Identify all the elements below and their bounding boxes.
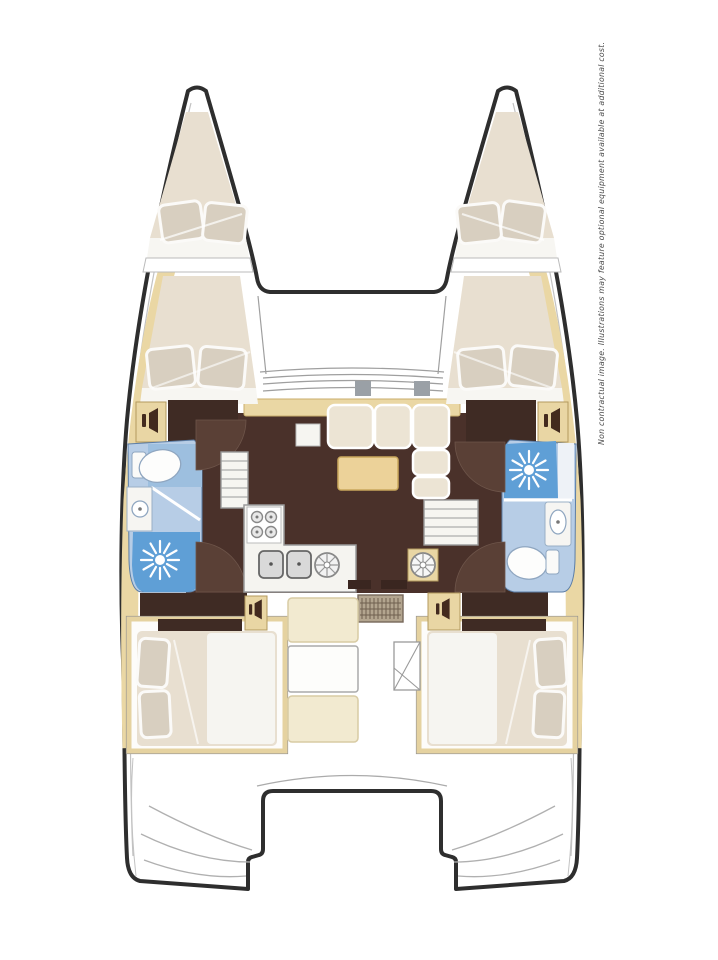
hatch-cabinet xyxy=(408,549,438,581)
starboard-bathroom xyxy=(502,440,576,592)
windshield-mullion xyxy=(414,381,430,396)
cockpit-bench xyxy=(288,598,358,642)
cockpit-table xyxy=(288,646,358,692)
cockpit-ladder-icon xyxy=(394,642,420,690)
port-bathroom xyxy=(127,440,202,592)
disclaimer-text: Non contractual image. Illustrations may… xyxy=(597,42,606,445)
round-hatch-icon xyxy=(315,553,339,577)
catamaran-floorplan: Non contractual image. Illustrations may… xyxy=(0,0,718,960)
saloon-table xyxy=(338,457,398,490)
catamaran-floorplan-page: Non contractual image. Illustrations may… xyxy=(0,0,718,960)
windshield-mullion xyxy=(355,381,371,396)
stove-burners-icon xyxy=(247,507,281,543)
toilet-tank xyxy=(546,550,559,574)
shower-tray xyxy=(132,532,200,592)
cockpit-bench xyxy=(288,696,358,742)
saloon-seat-step xyxy=(296,424,320,446)
